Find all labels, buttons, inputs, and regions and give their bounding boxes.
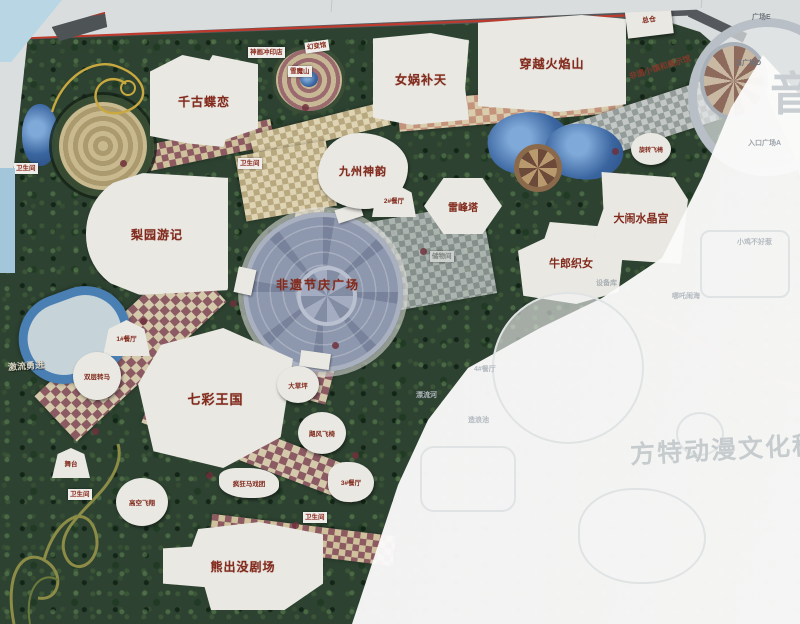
- entrance-label: 广场E: [752, 14, 771, 21]
- tag-label: 卫生间: [16, 165, 36, 172]
- attraction-label: 七彩王国: [187, 389, 243, 408]
- faded-label-piaoliuhe: 漂流河: [416, 390, 437, 400]
- tag-label: 神画冲印店: [250, 49, 283, 56]
- faded-label-canting4: 4#餐厅: [474, 364, 496, 374]
- tag-label: 雪魔山: [290, 68, 310, 75]
- attraction-label: 牛郎织女: [549, 255, 593, 271]
- tag-label: 卫生间: [305, 514, 325, 521]
- attraction-label: 梨园游记: [131, 226, 183, 243]
- entrance-label-e: 广场E: [752, 12, 771, 22]
- tag-label: 幻变馆: [307, 42, 327, 52]
- attraction-label: 熊出没剧场: [210, 558, 275, 575]
- facility-label: 大草坪: [288, 380, 308, 390]
- ride-gaokongfeixiang: 高空飞翔: [116, 478, 168, 526]
- facility-label: 高空飞翔: [129, 497, 155, 507]
- entrance-label: 入口广场A: [748, 140, 781, 147]
- attraction-label: 女娲补天: [395, 71, 447, 88]
- faded-plaza-outline: [492, 292, 644, 444]
- sky-reflection-left: [0, 168, 15, 273]
- attraction-label: 千古蝶恋: [178, 93, 230, 110]
- tag-label: 卫生间: [240, 160, 260, 167]
- attraction-label: 穿越火焰山: [519, 55, 584, 72]
- lawn-dacaoping: 大草坪: [277, 366, 319, 403]
- attraction-label: 大闹水晶宫: [614, 210, 669, 226]
- coaster-track-nw: [52, 64, 143, 113]
- attraction-qiangudielian: 千古蝶恋: [150, 55, 258, 147]
- facility-label: 旋转飞椅: [639, 145, 663, 154]
- ride-label-jiliuyongjin: 激流勇进: [8, 358, 45, 373]
- coaster-loop: [121, 81, 135, 95]
- facility-label: 3#餐厅: [341, 477, 361, 487]
- faded-pool-outline: [578, 488, 706, 584]
- plaza-label-feiyijieqing: 非遗节庆广场: [253, 276, 383, 293]
- watermark-text: 方特动漫文化科技: [630, 430, 800, 469]
- shop-tag-chongyindian: 神画冲印店: [248, 47, 285, 58]
- faded-label: 4#餐厅: [474, 366, 496, 373]
- restroom-tag-south: 卫生间: [303, 512, 327, 523]
- ride-xuanzhuanfeiyi: 旋转飞椅: [631, 133, 671, 165]
- facility-label: 双层转马: [84, 371, 110, 381]
- attraction-label: 九州神韵: [339, 163, 387, 179]
- facility-label: 1#餐厅: [116, 333, 136, 343]
- faded-label: 造浪池: [468, 417, 489, 424]
- facility-label: 疯狂马戏团: [233, 478, 266, 488]
- faded-label: 设备库: [596, 280, 617, 287]
- restroom-tag-north: 卫生间: [238, 158, 262, 169]
- ornamental-trees: [120, 160, 127, 167]
- attraction-label: 雷峰塔: [448, 199, 478, 214]
- tag-label: 储物间: [432, 253, 452, 260]
- facility-label: 舞台: [65, 458, 78, 468]
- faded-label-nezha: 哪吒闹海: [672, 291, 700, 301]
- facility-label: 2#餐厅: [384, 195, 404, 205]
- faded-label-xiaoji: 小鸡不好惹: [737, 237, 772, 247]
- ride-jufengfeiyi: 飓风飞椅: [298, 412, 346, 454]
- facility-label: 飓风飞椅: [309, 428, 335, 438]
- faded-label: 小鸡不好惹: [737, 239, 772, 246]
- building-label: 总仓: [641, 14, 656, 26]
- attraction-nuwabutian: 女娲补天: [373, 33, 469, 125]
- faded-building-outline: [420, 446, 516, 512]
- faded-label: 漂流河: [416, 392, 437, 399]
- ride-tag-xuemoshan: 雪魔山: [288, 66, 312, 77]
- entrance-label-d: 口广场D: [735, 58, 761, 68]
- faded-label-zaolangchi: 造浪池: [468, 415, 489, 425]
- restroom-tag-west: 卫生间: [14, 163, 38, 174]
- plaza-label: 非遗节庆广场: [276, 278, 360, 292]
- watermark-text: 音: [770, 68, 800, 120]
- tag-label: 卫生间: [70, 491, 90, 498]
- storage-tag-chuwujian: 储物间: [430, 251, 454, 262]
- faded-label-shebeiku: 设备库: [596, 278, 617, 288]
- entrance-label-a: 入口广场A: [748, 138, 781, 148]
- ride-shuangcengzhuanma: 双层转马: [73, 352, 121, 400]
- ride-fengkuangmaxituan: 疯狂马戏团: [219, 468, 279, 498]
- park-map-photo: 千古蝶恋 女娲补天 穿越火焰山 总仓 九州神韵 梨园游记 雷峰塔 牛郎织女 大闹…: [0, 0, 800, 624]
- coaster-track-sw-2: [29, 577, 58, 624]
- entrance-label: 口广场D: [735, 60, 761, 67]
- tag-label: 激流勇进: [8, 360, 45, 372]
- attraction-chuanyuehuoyanshan: 穿越火焰山: [478, 15, 626, 112]
- restroom-tag-southwest: 卫生间: [68, 489, 92, 500]
- restaurant-3: 3#餐厅: [328, 462, 374, 502]
- faded-label: 哪吒闹海: [672, 293, 700, 300]
- attraction-liyuanyouji: 梨园游记: [86, 173, 228, 295]
- watermark-yin: 音: [770, 58, 800, 124]
